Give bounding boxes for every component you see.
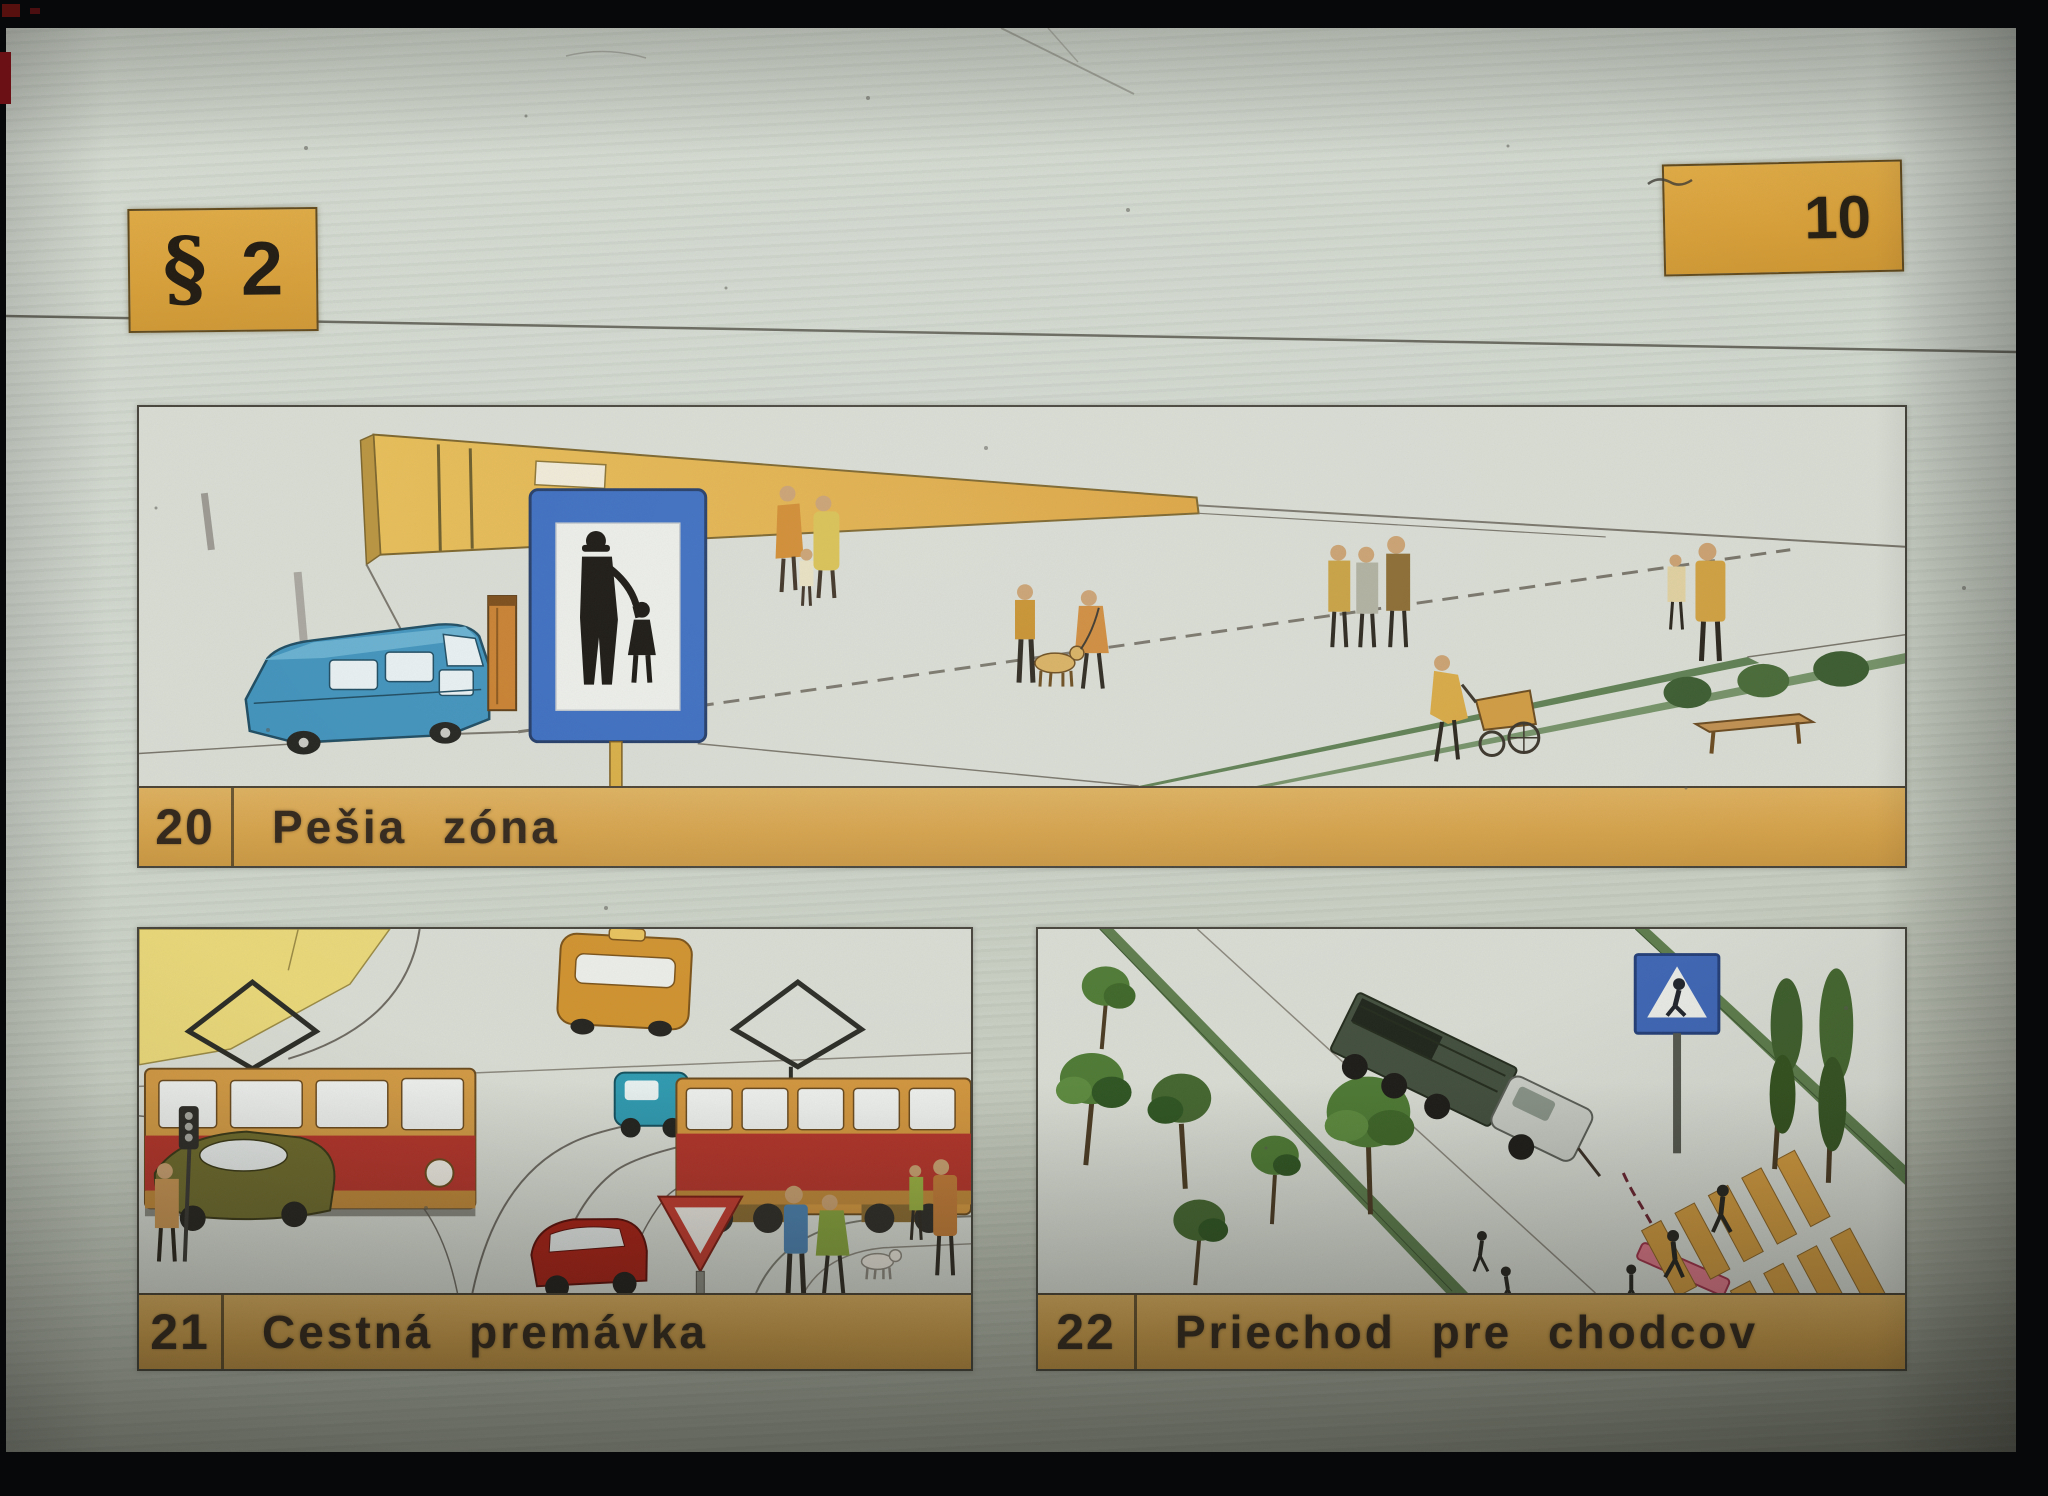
- caption-bar-20: 20 Pešia zóna: [139, 786, 1905, 866]
- figure-number: 20: [139, 798, 231, 856]
- film-edge-mark: [30, 8, 40, 14]
- caption-bar-21: 21 Cestná premávka: [139, 1293, 971, 1369]
- pedestrian-zone-illustration: [139, 407, 1905, 786]
- bench: [1695, 714, 1813, 753]
- caption-bar-22: 22 Priechod pre chodcov: [1038, 1293, 1905, 1369]
- pedestrian-zone-sign: [530, 490, 706, 786]
- pair-right: [1668, 543, 1726, 661]
- section-badge: § 2: [127, 207, 318, 333]
- figure-title: Pešia zóna: [234, 800, 1905, 854]
- tram-right: [676, 982, 971, 1233]
- blue-van: [246, 624, 489, 754]
- figure-number: 21: [139, 1303, 221, 1361]
- yield-sign: [659, 1197, 743, 1293]
- poplar-trees: [1770, 968, 1854, 1182]
- caption-divider: [231, 788, 234, 866]
- photographed-slide-page: { "slide": { "section_badge": { "symbol"…: [0, 0, 2048, 1496]
- panel-pedestrian-zone: 20 Pešia zóna: [137, 405, 1907, 868]
- figure-number: 22: [1038, 1303, 1134, 1361]
- woman-with-stroller: [1430, 655, 1539, 761]
- scratch-line: [1048, 28, 1078, 62]
- pedestrian-crossing-sign: [1635, 955, 1719, 1154]
- sign-pole: [1673, 1033, 1681, 1153]
- taxi: [556, 929, 693, 1040]
- paragraph-symbol: §: [162, 226, 207, 310]
- figure-title: Priechod pre chodcov: [1137, 1305, 1905, 1359]
- red-car: [530, 1216, 649, 1293]
- figure-title: Cestná premávka: [224, 1305, 971, 1359]
- post: [201, 493, 215, 551]
- page-number-badge: 10: [1662, 159, 1904, 276]
- scratch-line: [1001, 28, 1134, 94]
- caption-divider: [1134, 1295, 1137, 1369]
- panel-road-traffic: 21 Cestná premávka: [137, 927, 973, 1371]
- section-number: 2: [240, 231, 283, 307]
- kiosk-column: [488, 596, 516, 710]
- panel-pedestrian-crossing: 22 Priechod pre chodcov: [1036, 927, 1907, 1371]
- couple-walking-dog: [1015, 584, 1109, 688]
- group-of-three: [1328, 536, 1410, 647]
- building-corner: [139, 929, 390, 1065]
- page-number: 10: [1804, 182, 1872, 252]
- bushes: [1664, 651, 1870, 708]
- post: [294, 572, 308, 643]
- small-dog: [862, 1250, 902, 1280]
- dust-hair: [566, 51, 646, 58]
- pedestrian-crossing-illustration: [1038, 929, 1905, 1293]
- film-edge-mark: [0, 52, 11, 104]
- slide-surface: § 2 10: [6, 28, 2016, 1452]
- sign-pole: [610, 742, 622, 786]
- film-edge-mark: [2, 4, 20, 17]
- caption-divider: [221, 1295, 224, 1369]
- road-traffic-illustration: [139, 929, 971, 1293]
